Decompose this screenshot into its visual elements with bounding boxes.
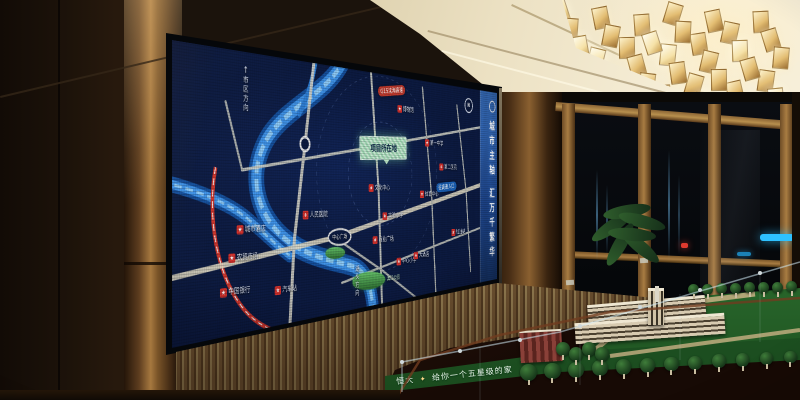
tree-trunk — [647, 372, 649, 377]
tree-trunk — [601, 360, 603, 365]
poi-marker-icon: + — [303, 210, 309, 219]
tree-trunk — [718, 367, 720, 372]
model-tree — [688, 356, 702, 370]
poi-label: 城市酒店 — [245, 223, 266, 234]
map-poi: ★加油站 — [451, 228, 465, 237]
poi-marker-icon: ★ — [425, 139, 429, 147]
model-tree — [758, 282, 769, 293]
tree-trunk — [766, 364, 768, 369]
tree-trunk — [789, 362, 791, 367]
chandelier-cube — [772, 46, 790, 69]
tree-trunk — [623, 374, 625, 379]
poi-marker-icon: ★ — [414, 251, 418, 259]
floor — [0, 390, 400, 400]
model-tree — [712, 354, 726, 368]
poi-label: 文化中心 — [375, 183, 390, 192]
map-poi: ★体育中心 — [420, 190, 439, 198]
route-pill: G15沈海高速 — [378, 85, 406, 97]
poi-marker-icon: ★ — [397, 104, 402, 112]
map-poi: ★城市酒店 — [237, 223, 266, 234]
tree-trunk — [551, 378, 553, 383]
model-tree — [582, 342, 596, 356]
map-poi: +人民医院 — [303, 209, 328, 219]
poi-marker-icon: ★ — [397, 257, 402, 265]
model-tree — [592, 360, 608, 376]
model-tree — [736, 353, 749, 366]
tree-trunk — [562, 355, 564, 360]
tree-trunk — [735, 293, 737, 298]
poi-label: 农贸市场 — [237, 251, 258, 263]
model-tree — [772, 282, 783, 293]
poi-label: 商业广场 — [379, 234, 394, 243]
model-tree — [760, 352, 773, 365]
poi-marker-icon: ★ — [373, 236, 378, 244]
poi-label: 第一中学 — [430, 139, 443, 148]
screen-edge-highlight — [499, 88, 502, 286]
potted-plant — [588, 200, 672, 290]
chandelier-cube — [669, 61, 688, 85]
chandelier-cube — [711, 69, 727, 91]
model-tree — [784, 351, 797, 364]
brand-logo-icon: ✦ — [419, 375, 427, 384]
tree-trunk — [791, 291, 793, 296]
poi-marker-icon: ★ — [420, 190, 424, 197]
model-tree — [569, 347, 583, 361]
model-sign-totem — [655, 286, 659, 302]
showroom-photo: 中心广场 滨江公园 G15沈海高速往高速入口 +人民医院★城市酒店★农贸市场★中… — [0, 0, 800, 400]
compass-icon: N — [465, 97, 473, 113]
map-poi: ★实验小学 — [382, 211, 403, 220]
poi-marker-icon: ★ — [220, 287, 227, 297]
chandelier-cube — [641, 30, 663, 56]
tree-trunk — [742, 366, 744, 371]
model-tree — [556, 342, 570, 356]
poi-label: 体育中心 — [425, 190, 438, 198]
map-poi: ★第一中学 — [425, 138, 443, 147]
model-tree — [688, 284, 699, 295]
tree-trunk — [694, 369, 696, 374]
poi-marker-icon: ★ — [382, 212, 387, 220]
poi-marker-icon: ★ — [451, 229, 455, 236]
map-river — [172, 40, 374, 348]
direction-sign-river: 湖头方向 — [355, 265, 361, 301]
tree-trunk — [749, 292, 751, 297]
plaza-label: 中心广场 — [332, 232, 347, 241]
map-poi: ★博物馆 — [397, 104, 413, 114]
tree-trunk — [693, 294, 695, 299]
model-tree — [616, 359, 631, 374]
poi-marker-icon: ★ — [237, 225, 244, 235]
chandelier-cube — [674, 21, 691, 44]
tree-trunk — [528, 380, 530, 385]
poi-marker-icon: ★ — [369, 184, 374, 192]
project-location-marker: 项目所在地 — [359, 136, 406, 160]
sidebar-emblem-icon — [489, 100, 495, 113]
poi-label: 大酒店 — [419, 250, 429, 259]
model-tree — [730, 283, 741, 294]
dark-wall-left — [0, 0, 128, 400]
map-poi: ★文化中心 — [369, 183, 390, 192]
poi-label: 博物馆 — [403, 105, 414, 115]
tree-trunk — [599, 375, 601, 380]
blue-light-bar-small — [737, 252, 751, 256]
poi-marker-icon: + — [439, 163, 443, 170]
tree-trunk — [721, 293, 723, 298]
model-tree — [640, 358, 655, 373]
poi-label: 人民医院 — [310, 209, 328, 219]
tree-trunk — [707, 294, 709, 299]
roundabout — [300, 137, 309, 151]
poi-label: 汽车站 — [282, 283, 297, 294]
wall-panel-seam — [58, 0, 60, 400]
sidebar-slogan: 城市主轴 汇万千繁华 — [488, 120, 495, 261]
brand-name: 恒大 — [396, 375, 415, 386]
tree-trunk — [670, 370, 672, 375]
model-tree — [702, 284, 713, 295]
poi-marker-icon: ★ — [228, 253, 235, 263]
poi-label: 第二医院 — [444, 163, 457, 171]
tree-trunk — [575, 377, 577, 382]
model-tree — [595, 347, 609, 361]
tree-trunk — [575, 360, 577, 365]
chandelier-cube — [704, 9, 724, 34]
model-tree — [520, 364, 537, 381]
model-tree — [544, 363, 561, 380]
poi-marker-icon: ★ — [275, 285, 281, 295]
blue-light-bar — [760, 234, 794, 241]
city-light-streak — [678, 175, 680, 255]
poi-label: 实验小学 — [388, 211, 403, 220]
model-tree — [664, 357, 679, 372]
park-label: 滨江公园 — [387, 273, 400, 282]
tree-trunk — [763, 292, 765, 297]
tree-trunk — [777, 292, 779, 297]
map-poi: ★大酒店 — [414, 250, 430, 259]
poi-label: 加油站 — [456, 228, 465, 236]
direction-sign-north: ↑ 市区方向 — [242, 66, 249, 117]
project-label: 项目所在地 — [370, 142, 397, 155]
map-poi: ★商业广场 — [373, 234, 394, 244]
tree-trunk — [588, 355, 590, 360]
map-poi: +第二医院 — [439, 163, 457, 172]
chandelier-cube — [739, 56, 760, 82]
red-light-dot — [681, 243, 688, 248]
